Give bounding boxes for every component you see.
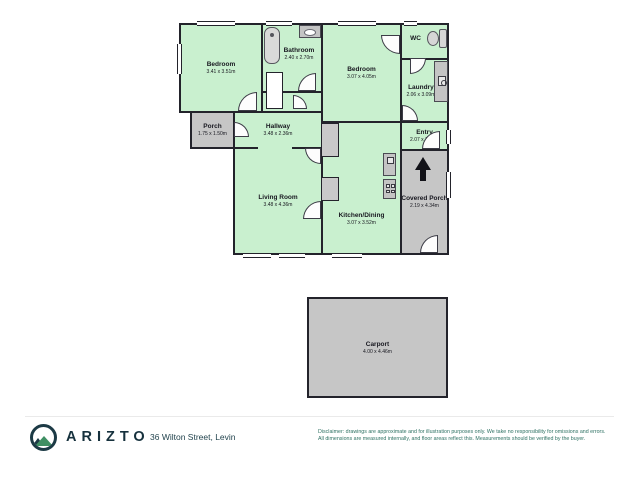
window (266, 21, 292, 26)
room-dims: 3.48 x 4.36m (258, 202, 297, 208)
room-bathroom-label: Bathroom 2.40 x 2.70m (284, 47, 315, 61)
closet (266, 72, 283, 109)
room-dims: 3.48 x 2.36m (264, 131, 293, 137)
room-bedroom2-label: Bedroom 3.07 x 4.05m (347, 66, 376, 80)
room-name: WC (410, 35, 421, 43)
room-laundry-label: Laundry 2.06 x 3.09m (406, 83, 435, 97)
room-dims: 1.75 x 1.50m (198, 131, 227, 137)
arizto-logo-icon (30, 424, 57, 451)
room-carport-label: Carport 4.00 x 4.46m (363, 340, 392, 354)
room-name: Covered Porch (401, 195, 447, 203)
bathtub-icon (264, 27, 280, 64)
disclaimer-text: Disclaimer: drawings are approximate and… (318, 429, 618, 442)
disclaimer-line2: All dimensions are measured internally, … (318, 436, 618, 443)
room-dims: 3.07 x 3.52m (339, 220, 385, 226)
window (446, 130, 451, 144)
window (338, 21, 376, 26)
room-living-label: Living Room 3.48 x 4.36m (258, 194, 297, 208)
window (197, 21, 235, 26)
stove-icon (383, 179, 396, 199)
disclaimer-line1: Disclaimer: drawings are approximate and… (318, 429, 618, 436)
room-dims: 3.07 x 4.05m (347, 74, 376, 80)
room-name: Kitchen/Dining (339, 212, 385, 220)
room-dims: 2.06 x 3.09m (406, 91, 435, 97)
fridge-icon (383, 153, 396, 176)
room-hallway-label: Hallway 3.48 x 2.36m (264, 123, 293, 137)
room-name: Bathroom (284, 47, 315, 55)
window (177, 44, 182, 74)
room-dims: 2.40 x 2.70m (284, 55, 315, 61)
floorplan-page: Bedroom 3.41 x 3.51m Bathroom 2.40 x 2.7… (0, 0, 639, 479)
brand-wordmark: ARIZTO (66, 429, 150, 445)
room-name: Living Room (258, 194, 297, 202)
chimney-block (321, 177, 339, 201)
room-living: Living Room 3.48 x 4.36m (233, 147, 323, 255)
washer-icon (434, 61, 448, 102)
window (332, 253, 362, 258)
window (446, 172, 451, 198)
room-covered-porch-label: Covered Porch 2.19 x 4.34m (401, 195, 447, 209)
window (279, 253, 305, 258)
property-address: 36 Wilton Street, Levin (150, 432, 236, 442)
footer-divider (25, 416, 614, 417)
room-name: Laundry (406, 83, 435, 91)
room-bedroom1-label: Bedroom 3.41 x 3.51m (207, 61, 236, 75)
room-name: Bedroom (207, 61, 236, 69)
room-name: Carport (363, 340, 392, 348)
wall-opening (258, 146, 292, 150)
room-porch-label: Porch 1.75 x 1.50m (198, 123, 227, 137)
chimney-block (321, 123, 339, 157)
room-dims: 2.19 x 4.34m (401, 203, 447, 209)
window (243, 253, 271, 258)
toilet-tank-icon (439, 29, 447, 48)
room-name: Porch (198, 123, 227, 131)
room-name: Bedroom (347, 66, 376, 74)
room-kitchen-label: Kitchen/Dining 3.07 x 3.52m (339, 212, 385, 226)
toilet-icon (427, 31, 439, 46)
room-wc-label: WC (410, 35, 421, 43)
room-dims: 3.41 x 3.51m (207, 69, 236, 75)
room-porch: Porch 1.75 x 1.50m (190, 111, 235, 149)
room-dims: 4.00 x 4.46m (363, 348, 392, 354)
room-carport: Carport 4.00 x 4.46m (307, 297, 448, 398)
sink-icon (299, 25, 321, 38)
window (404, 21, 417, 26)
room-name: Hallway (264, 123, 293, 131)
